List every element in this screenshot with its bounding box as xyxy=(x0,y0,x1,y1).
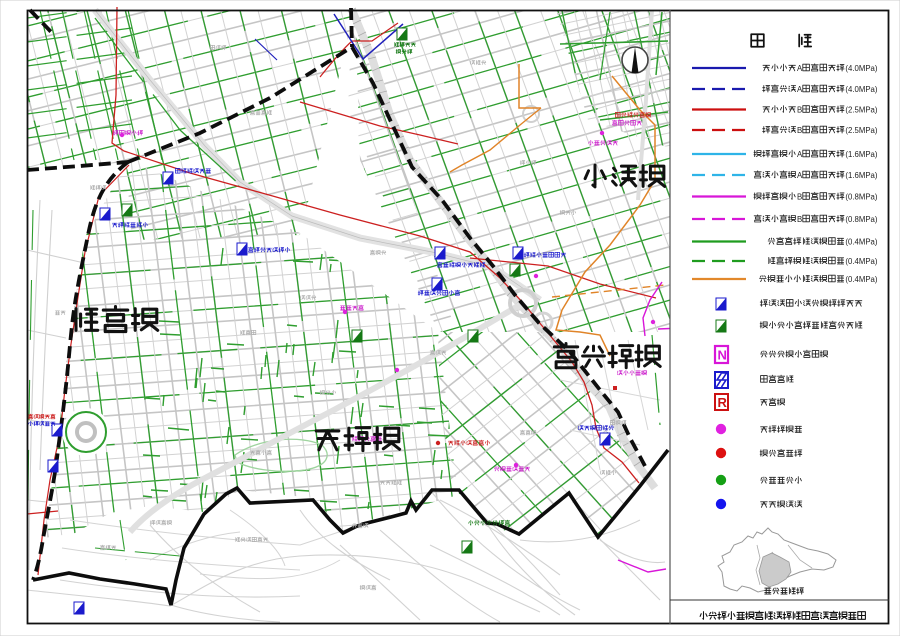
svg-text:(0.4MPa): (0.4MPa) xyxy=(845,275,877,284)
svg-text:A: A xyxy=(797,150,803,159)
svg-text:B: B xyxy=(797,193,802,202)
svg-text:(0.4MPa): (0.4MPa) xyxy=(845,238,877,247)
svg-text:N: N xyxy=(718,348,727,363)
svg-text:B: B xyxy=(797,106,802,115)
svg-text:A: A xyxy=(797,85,803,94)
svg-text:B: B xyxy=(797,215,802,224)
svg-text:(0.4MPa): (0.4MPa) xyxy=(845,257,877,266)
svg-text:(4.0MPa): (4.0MPa) xyxy=(845,85,877,94)
svg-text:(2.5MPa): (2.5MPa) xyxy=(845,106,877,115)
svg-text:B: B xyxy=(797,126,802,135)
svg-text:(1.6MPa): (1.6MPa) xyxy=(845,150,877,159)
svg-text:(1.6MPa): (1.6MPa) xyxy=(845,171,877,180)
svg-text:(0.8MPa): (0.8MPa) xyxy=(845,215,877,224)
svg-text:A: A xyxy=(797,64,803,73)
svg-text:R: R xyxy=(718,395,728,410)
svg-text:(4.0MPa): (4.0MPa) xyxy=(845,64,877,73)
svg-text:A: A xyxy=(797,171,803,180)
svg-text:(0.8MPa): (0.8MPa) xyxy=(845,193,877,202)
svg-text:(2.5MPa): (2.5MPa) xyxy=(845,126,877,135)
